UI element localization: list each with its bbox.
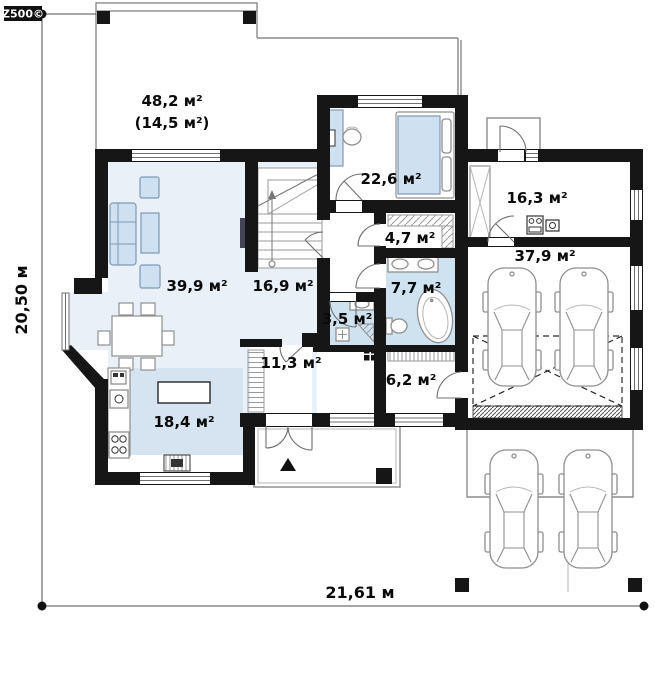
stairs-icon [258, 168, 322, 268]
window [631, 190, 642, 220]
wc-label: 3,5 м² [322, 310, 373, 328]
fireplace-icon [164, 455, 190, 471]
dimension-marker [640, 602, 649, 611]
floor-plan-page: 48,2 м² (14,5 м²) 39,9 м² 16,9 м² 18,4 м… [0, 0, 655, 678]
kitchen-label: 18,4 м² [153, 413, 214, 431]
car-driveway-1 [485, 450, 543, 568]
armchair-icon [140, 265, 160, 288]
bathroom-label: 7,7 м² [391, 279, 442, 297]
porch-column [376, 468, 392, 484]
garage-label: 37,9 м² [514, 247, 575, 265]
entry-porch [254, 425, 400, 487]
living-room-label: 39,9 м² [166, 277, 227, 295]
floor-plan-drawing: 48,2 м² (14,5 м²) 39,9 м² 16,9 м² 18,4 м… [0, 0, 655, 678]
window [62, 293, 69, 350]
window [358, 96, 422, 107]
window [395, 414, 443, 426]
width-dimension-label: 21,61 м [325, 583, 394, 602]
pillow-icon [442, 157, 451, 191]
brand-logo-text: Z500© [2, 8, 44, 21]
hall-label: 16,9 м² [252, 277, 313, 295]
window [631, 348, 642, 390]
utility-room-label: 16,3 м² [506, 189, 567, 207]
chair-icon [343, 129, 361, 145]
window [330, 414, 374, 426]
entrance-double-door [266, 426, 312, 450]
side-porch [487, 118, 540, 150]
closet-shelf [442, 226, 453, 248]
entrance-arrow-icon [280, 458, 296, 471]
terrace-label-secondary: (14,5 м²) [135, 114, 210, 132]
kitchen-island-icon [158, 382, 210, 403]
corridor-label: 11,3 м² [260, 354, 321, 372]
pillow-icon [442, 119, 451, 153]
coffee-table-icon [141, 213, 159, 253]
height-dimension-label: 20,50 м [12, 265, 31, 334]
door [500, 126, 526, 152]
terrace-column [243, 11, 256, 24]
toilet-icon [386, 318, 407, 334]
drain-icon [336, 328, 349, 341]
oven-icon [110, 390, 128, 408]
wardrobe-label: 4,7 м² [385, 229, 436, 247]
window [526, 150, 538, 161]
stove-icon [109, 432, 129, 458]
dimension-marker [38, 602, 47, 611]
door [437, 372, 461, 398]
armchair-icon [140, 177, 159, 198]
car-garage-1 [483, 268, 541, 386]
sofa-icon [110, 203, 136, 265]
gate-post [455, 578, 469, 592]
driveway [455, 430, 642, 592]
sink-icon [418, 259, 434, 269]
sink-icon [392, 259, 408, 269]
desk-icon [325, 110, 361, 166]
sink-icon [111, 371, 126, 384]
kitchen-counter [108, 368, 130, 458]
utility-cabinet [470, 166, 490, 239]
terrace-column [97, 11, 110, 24]
brand-logo: Z500© [2, 6, 44, 21]
tv-icon [240, 218, 245, 248]
terrace-label: 48,2 м² [141, 92, 202, 110]
boiler-icon [527, 216, 559, 234]
window [132, 150, 220, 161]
door [336, 174, 362, 200]
garage-door [473, 406, 622, 418]
window [140, 473, 210, 484]
window [631, 266, 642, 310]
closet-shelf [388, 215, 453, 226]
car-garage-2 [555, 268, 613, 386]
vestibule-label: 6,2 м² [386, 371, 437, 389]
car-driveway-2 [559, 450, 617, 568]
gate-post [628, 578, 642, 592]
bedroom-label: 22,6 м² [360, 170, 421, 188]
